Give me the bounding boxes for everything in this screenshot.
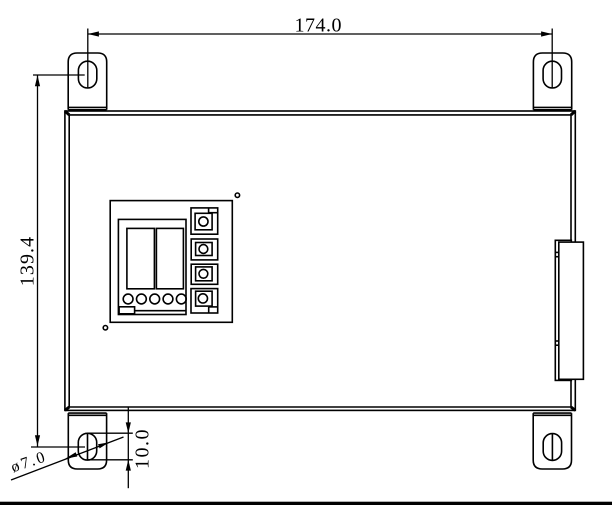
svg-text:139.4: 139.4 [17, 236, 39, 287]
svg-text:10.0: 10.0 [132, 428, 154, 469]
svg-text:174.0: 174.0 [294, 15, 342, 37]
